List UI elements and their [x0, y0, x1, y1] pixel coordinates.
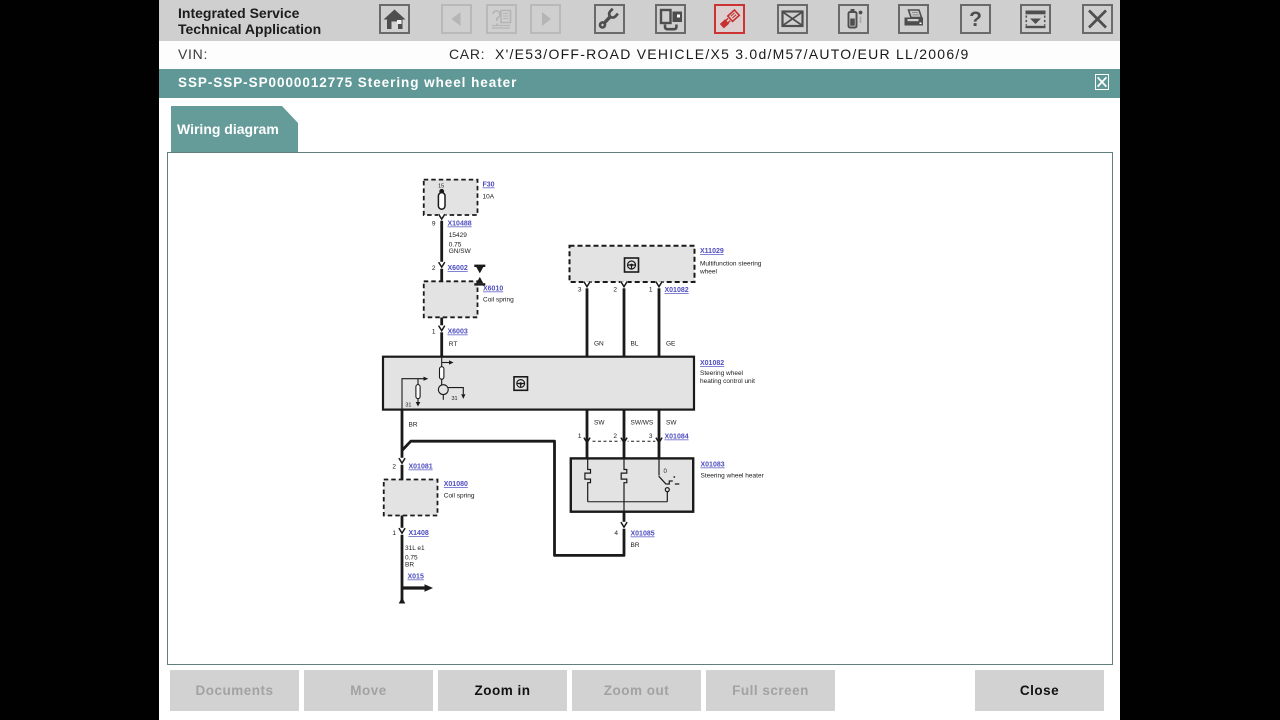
svg-text:1: 1 — [649, 287, 653, 294]
svg-text:X6010: X6010 — [483, 286, 503, 293]
svg-text:SW/WS: SW/WS — [631, 420, 654, 427]
svg-text:BR: BR — [631, 542, 640, 549]
svg-text:BR: BR — [409, 422, 418, 429]
svg-text:Multifunction steering: Multifunction steering — [700, 261, 762, 268]
svg-text:31L e1: 31L e1 — [405, 545, 425, 552]
svg-text:Steering wheel heater: Steering wheel heater — [701, 473, 765, 480]
svg-text:X01083: X01083 — [701, 462, 725, 469]
svg-text:31: 31 — [405, 403, 411, 409]
svg-text:GE: GE — [666, 341, 676, 348]
svg-text:15429: 15429 — [449, 232, 467, 239]
svg-text:F30: F30 — [483, 182, 495, 189]
svg-text:SW: SW — [594, 420, 605, 427]
svg-text:1: 1 — [578, 433, 582, 440]
svg-text:X01085: X01085 — [631, 531, 655, 538]
svg-text:GN: GN — [594, 341, 604, 348]
svg-text:10A: 10A — [483, 194, 495, 201]
svg-text:X10488: X10488 — [448, 221, 472, 228]
svg-text:4: 4 — [614, 530, 618, 537]
svg-text:X6002: X6002 — [448, 265, 468, 272]
svg-text:X11029: X11029 — [700, 248, 724, 255]
svg-text:BL: BL — [631, 341, 639, 348]
svg-text:2: 2 — [432, 265, 436, 272]
svg-text:X015: X015 — [408, 574, 424, 581]
svg-text:X01084: X01084 — [665, 434, 689, 441]
svg-text:0.75: 0.75 — [405, 555, 418, 562]
svg-text:?: ? — [969, 8, 982, 31]
svg-text:2: 2 — [613, 433, 617, 440]
svg-text:Steering wheel: Steering wheel — [700, 370, 744, 377]
svg-text:Coil spring: Coil spring — [483, 297, 514, 304]
svg-text:2: 2 — [613, 287, 617, 294]
svg-text:SW: SW — [666, 420, 677, 427]
svg-text:RT: RT — [449, 341, 458, 348]
svg-text:GN/SW: GN/SW — [449, 248, 472, 255]
svg-text:1: 1 — [392, 530, 396, 537]
svg-text:Coil spring: Coil spring — [444, 493, 475, 500]
svg-text:X6003: X6003 — [448, 329, 468, 336]
svg-text:1: 1 — [432, 329, 436, 336]
svg-text:X01081: X01081 — [409, 464, 433, 471]
svg-text:2: 2 — [392, 464, 396, 471]
svg-text:3: 3 — [649, 433, 653, 440]
svg-text:31: 31 — [452, 396, 458, 402]
svg-text:15: 15 — [438, 183, 444, 189]
svg-text:X01080: X01080 — [444, 481, 468, 488]
svg-text:BR: BR — [405, 562, 414, 569]
svg-text:heating control unit: heating control unit — [700, 378, 755, 385]
svg-text:X1408: X1408 — [409, 530, 429, 537]
svg-text:X01082: X01082 — [665, 287, 689, 294]
svg-text:9: 9 — [432, 221, 436, 228]
svg-text:3: 3 — [578, 287, 582, 294]
svg-text:X01082: X01082 — [700, 360, 724, 367]
svg-text:wheel: wheel — [699, 269, 718, 276]
